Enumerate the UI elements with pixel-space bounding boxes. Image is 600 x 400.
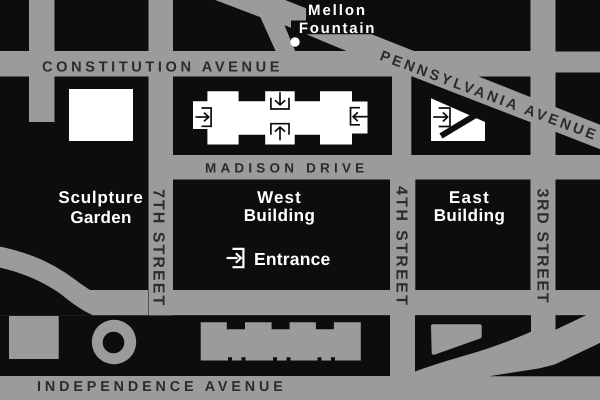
svg-text:Sculpture: Sculpture: [58, 188, 143, 207]
svg-text:INDEPENDENCE AVENUE: INDEPENDENCE AVENUE: [37, 379, 287, 395]
svg-text:East: East: [449, 188, 490, 207]
svg-text:MADISON DRIVE: MADISON DRIVE: [205, 161, 368, 176]
svg-text:7TH STREET: 7TH STREET: [150, 189, 167, 307]
svg-text:4TH STREET: 4TH STREET: [393, 186, 410, 307]
svg-text:Building: Building: [434, 206, 506, 225]
svg-text:CONSTITUTION AVENUE: CONSTITUTION AVENUE: [42, 59, 283, 75]
svg-text:Fountain: Fountain: [299, 20, 376, 37]
svg-text:Mellon: Mellon: [308, 2, 367, 19]
svg-text:3RD STREET: 3RD STREET: [533, 189, 550, 305]
svg-text:Garden: Garden: [70, 208, 131, 227]
svg-text:Entrance: Entrance: [254, 249, 331, 269]
svg-text:West: West: [257, 188, 302, 207]
svg-text:Building: Building: [244, 206, 316, 225]
